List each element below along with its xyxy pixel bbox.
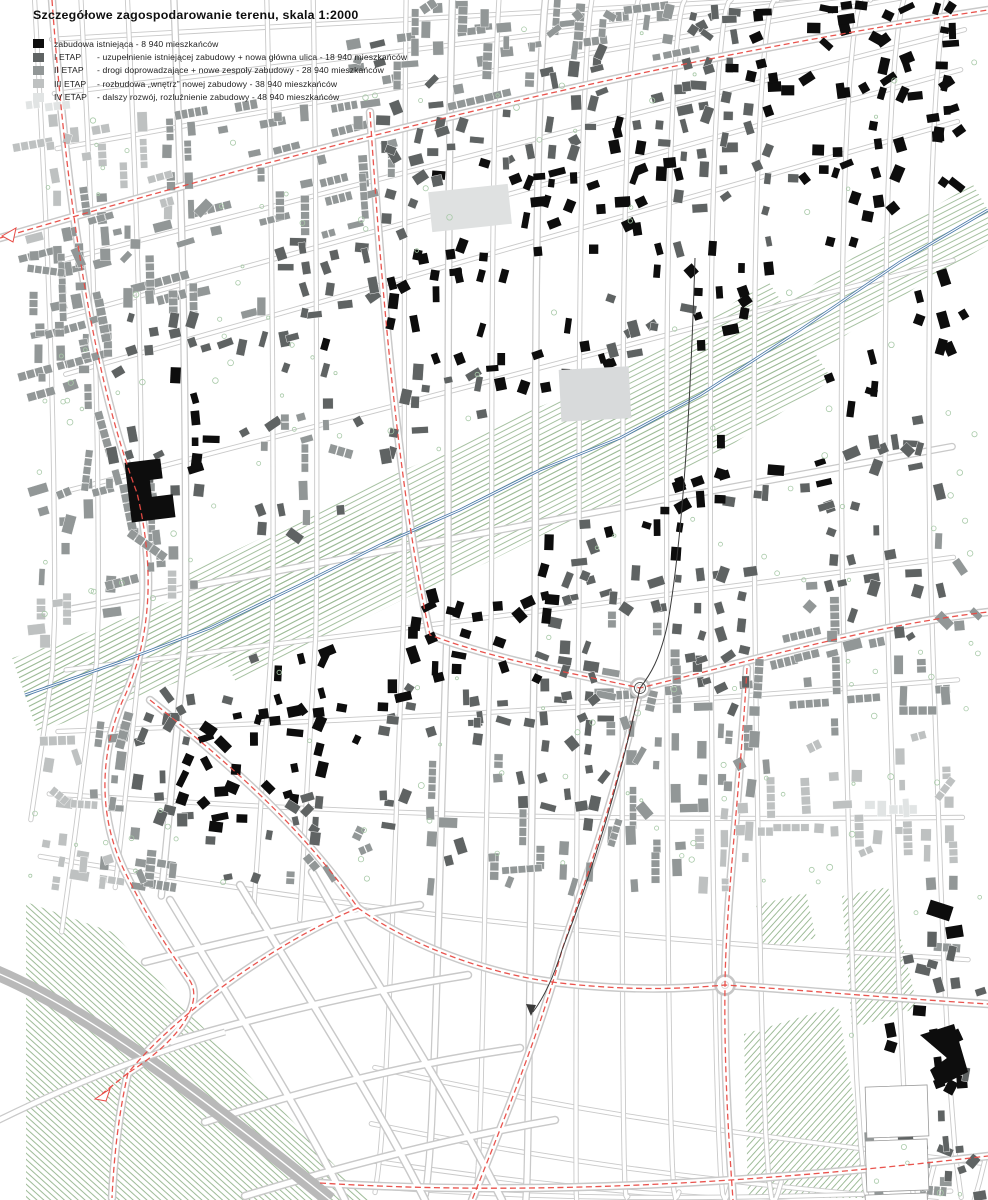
legend-stage-label: IV ETAP [54,92,97,102]
legend-items: zabudowa istniejąca - 8 940 mieszkańcówI… [33,37,407,104]
map-canvas [0,0,988,1200]
legend-stage-label: II ETAP [54,65,97,75]
site-plan-map [0,0,988,1200]
legend-item-description: - rozbudowa „wnętrz” nowej zabudowy - 38… [97,79,337,89]
legend-stage-label: I ETAP [54,52,97,62]
legend-item-description: - dalszy rozwój, rozluźnienie zabudowy -… [97,92,339,102]
legend-item: II ETAP- drogi doprowadzające + nowe zes… [33,64,407,77]
legend-item-description: zabudowa istniejąca - 8 940 mieszkańców [54,39,218,49]
legend-stage-label: III ETAP [54,79,97,89]
legend: Szczegółowe zagospodarowanie terenu, ska… [33,8,407,104]
legend-item: III ETAP- rozbudowa „wnętrz” nowej zabud… [33,77,407,90]
legend-item: zabudowa istniejąca - 8 940 mieszkańców [33,37,407,50]
legend-swatch [33,66,44,75]
legend-item-description: - uzupełnienie istniejącej zabudowy + no… [97,52,407,62]
map-title: Szczegółowe zagospodarowanie terenu, ska… [33,8,407,22]
legend-swatch [33,53,44,62]
legend-item-description: - drogi doprowadzające + nowe zespoły za… [97,65,384,75]
legend-swatch [33,79,44,88]
legend-swatch [33,93,44,102]
legend-swatch [33,39,44,48]
legend-item: I ETAP- uzupełnienie istniejącej zabudow… [33,50,407,63]
legend-item: IV ETAP- dalszy rozwój, rozluźnienie zab… [33,91,407,104]
